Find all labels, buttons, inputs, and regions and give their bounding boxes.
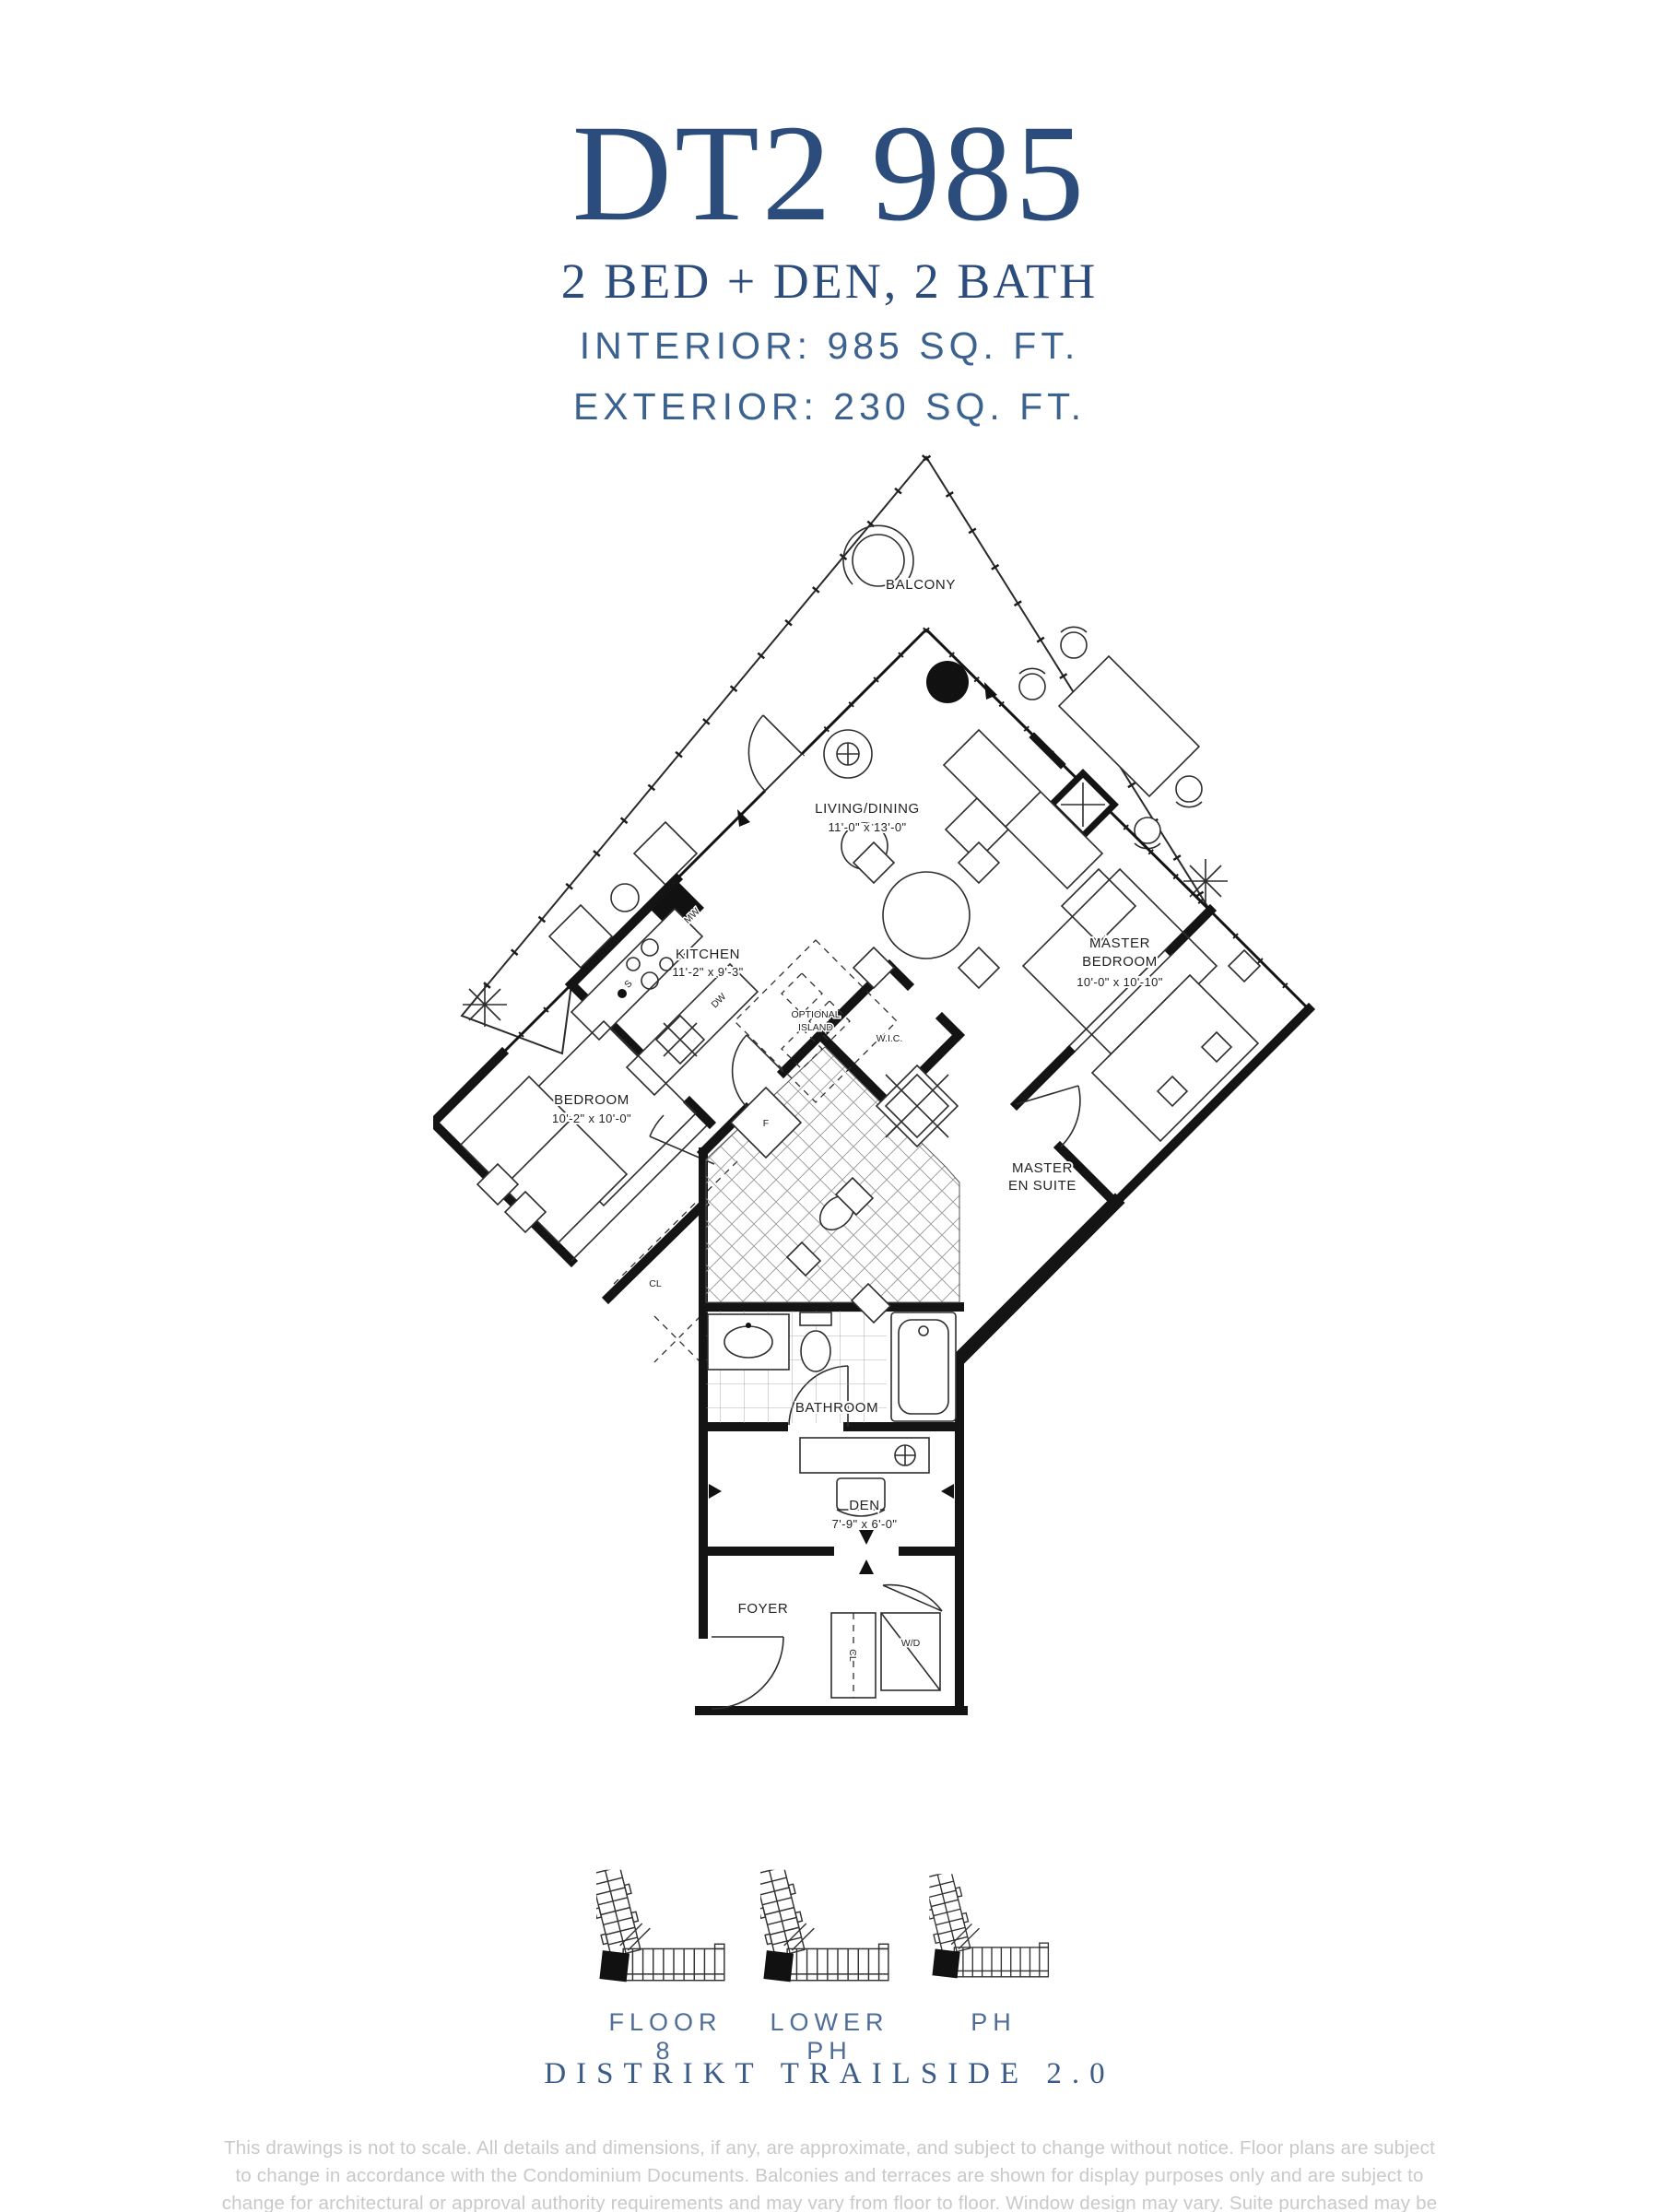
living-label: LIVING/DINING xyxy=(815,801,920,817)
foyer-label: FOYER xyxy=(738,1601,789,1617)
page-title: DT2 985 xyxy=(0,100,1659,247)
balcony-label: BALCONY xyxy=(886,577,956,593)
keyplan-ph-label: PH xyxy=(924,2008,1063,2037)
disclaimer-text: This drawings is not to scale. All detai… xyxy=(217,2135,1442,2212)
keyplans: FLOOR 8 LOWER PH PH xyxy=(0,1869,1659,2065)
keyplan-ph-map xyxy=(929,1874,1058,1985)
plant-icon xyxy=(1183,859,1228,903)
keyplan-lowerph-map xyxy=(760,1869,899,1989)
closet-label: CL xyxy=(649,1278,662,1289)
keyplan-lowerph: LOWER PH xyxy=(760,1869,899,2065)
svg-text:EN SUITE: EN SUITE xyxy=(1008,1178,1077,1194)
keyplan-floor8-map xyxy=(596,1869,735,1989)
column-round-icon xyxy=(926,661,969,703)
unit-configuration: 2 BED + DEN, 2 BATH xyxy=(0,247,1659,315)
bathtub-icon xyxy=(891,1312,956,1421)
plant-icon xyxy=(463,982,507,1027)
exterior-area: EXTERIOR: 230 SQ. FT. xyxy=(0,376,1659,437)
wic-label: W.I.C. xyxy=(877,1033,903,1044)
project-name: DISTRIKT TRAILSIDE 2.0 xyxy=(0,2057,1659,2091)
svg-text:11'-0" x 13'-0": 11'-0" x 13'-0" xyxy=(829,820,907,834)
foyer-closets xyxy=(831,1585,942,1698)
foyer-closet-label: CL xyxy=(847,1649,858,1662)
dining-table-icon xyxy=(883,872,970,959)
island-label: OPTIONAL xyxy=(791,1009,840,1020)
master-label: MASTER xyxy=(1089,935,1150,951)
interior-area: INTERIOR: 985 SQ. FT. xyxy=(0,315,1659,376)
den-label: DEN xyxy=(849,1498,879,1513)
svg-text:10'-0" x 10'-10": 10'-0" x 10'-10" xyxy=(1077,975,1163,989)
washer-dryer-label: W/D xyxy=(901,1638,921,1649)
svg-text:7'-9" x 6'-0": 7'-9" x 6'-0" xyxy=(832,1517,898,1531)
floorplan-page: DT2 985 2 BED + DEN, 2 BATH INTERIOR: 98… xyxy=(0,0,1659,2212)
kitchen-label: KITCHEN xyxy=(676,947,740,962)
svg-text:BEDROOM: BEDROOM xyxy=(1082,954,1158,970)
header: DT2 985 2 BED + DEN, 2 BATH INTERIOR: 98… xyxy=(0,100,1659,437)
keyplan-floor8: FLOOR 8 xyxy=(596,1869,735,2065)
svg-text:ISLAND: ISLAND xyxy=(798,1022,833,1033)
floor-plan: BALCONY LIVING/DINING 11'-0" x 13'-0" KI… xyxy=(433,450,1318,1768)
svg-text:10'-2" x 10'-0": 10'-2" x 10'-0" xyxy=(552,1112,631,1125)
bathroom-label: BATHROOM xyxy=(795,1400,878,1416)
svg-text:11'-2" x 9'-3": 11'-2" x 9'-3" xyxy=(672,965,743,979)
keyplan-ph: PH xyxy=(924,1869,1063,2065)
bedroom-label: BEDROOM xyxy=(554,1092,629,1108)
master-furniture xyxy=(1023,869,1260,1141)
fridge-label: F xyxy=(763,1118,769,1129)
ensuite-label: MASTER xyxy=(1012,1160,1073,1176)
